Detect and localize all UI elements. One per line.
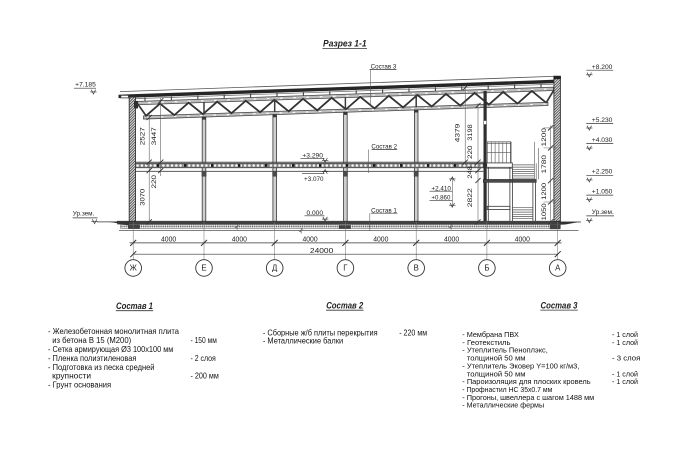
svg-text:1200: 1200 — [541, 182, 548, 200]
svg-text:3198: 3198 — [467, 124, 474, 141]
svg-text:Е: Е — [201, 264, 206, 273]
svg-text:- Металлические фермы: - Металлические фермы — [462, 401, 544, 410]
svg-text:Разрез 1-1: Разрез 1-1 — [323, 39, 367, 50]
svg-text:Ур.зем.: Ур.зем. — [73, 211, 95, 218]
svg-text:Б: Б — [484, 264, 489, 273]
svg-text:+2.250: +2.250 — [592, 169, 613, 176]
svg-text:+1.050: +1.050 — [592, 188, 613, 195]
svg-text:4000: 4000 — [161, 235, 176, 244]
svg-text:- 2 слоя: - 2 слоя — [191, 354, 216, 363]
svg-text:В: В — [414, 264, 419, 273]
svg-text:- Пленка полиэтиленовая: - Пленка полиэтиленовая — [48, 354, 136, 363]
svg-text:- 150 мм: - 150 мм — [191, 336, 217, 345]
svg-text:Состав 3: Состав 3 — [541, 300, 578, 310]
svg-text:Ж: Ж — [130, 264, 138, 273]
svg-text:А: А — [555, 264, 561, 273]
svg-text:3070: 3070 — [140, 188, 147, 206]
svg-text:- Сетка армирующая Ø3 100х100: - Сетка армирующая Ø3 100х100 мм — [48, 345, 173, 354]
svg-text:4000: 4000 — [232, 235, 247, 244]
svg-text:+8.200: +8.200 — [592, 64, 613, 71]
svg-text:+3.070: +3.070 — [304, 176, 324, 183]
svg-text:1780: 1780 — [541, 154, 548, 173]
svg-text:2527: 2527 — [140, 127, 147, 146]
svg-text:4379: 4379 — [455, 123, 462, 142]
svg-text:Состав 2: Состав 2 — [326, 300, 363, 310]
svg-text:220: 220 — [151, 174, 158, 188]
svg-text:- 3 слоя: - 3 слоя — [612, 354, 640, 363]
svg-text:4000: 4000 — [444, 235, 459, 244]
svg-text:- Железобетонная монолитная п: - Железобетонная монолитная плита — [48, 327, 180, 336]
svg-text:248: 248 — [467, 166, 474, 179]
svg-text:из бетона В 15 (М200): из бетона В 15 (М200) — [52, 336, 131, 345]
svg-text:- 1 слой: - 1 слой — [612, 338, 638, 347]
svg-text:Состав 1: Состав 1 — [116, 301, 153, 311]
svg-text:+4.030: +4.030 — [592, 137, 613, 144]
svg-text:2822: 2822 — [467, 188, 474, 208]
svg-text:4000: 4000 — [373, 235, 388, 244]
svg-text:Ур.зем.: Ур.зем. — [592, 209, 614, 216]
svg-text:1200: 1200 — [541, 127, 548, 146]
svg-text:3447: 3447 — [151, 127, 158, 146]
svg-text:+7.185: +7.185 — [75, 82, 96, 89]
svg-text:- Металлические балки: - Металлические балки — [263, 337, 343, 346]
svg-text:Д: Д — [272, 264, 278, 273]
svg-text:- Подготовка из песка средней: - Подготовка из песка средней — [48, 363, 155, 372]
svg-text:4000: 4000 — [302, 235, 317, 244]
svg-text:- Грунт основания: - Грунт основания — [48, 381, 111, 390]
svg-text:- 220 мм: - 220 мм — [399, 328, 427, 337]
svg-text:- 200 мм: - 200 мм — [191, 372, 219, 381]
svg-text:+5.230: +5.230 — [592, 117, 613, 124]
svg-text:- 1 слой: - 1 слой — [612, 377, 638, 386]
svg-text:крупности: крупности — [52, 372, 91, 381]
svg-text:4000: 4000 — [515, 235, 530, 244]
svg-text:220: 220 — [467, 145, 474, 159]
svg-text:1050: 1050 — [541, 203, 548, 221]
svg-text:24000: 24000 — [310, 246, 333, 255]
